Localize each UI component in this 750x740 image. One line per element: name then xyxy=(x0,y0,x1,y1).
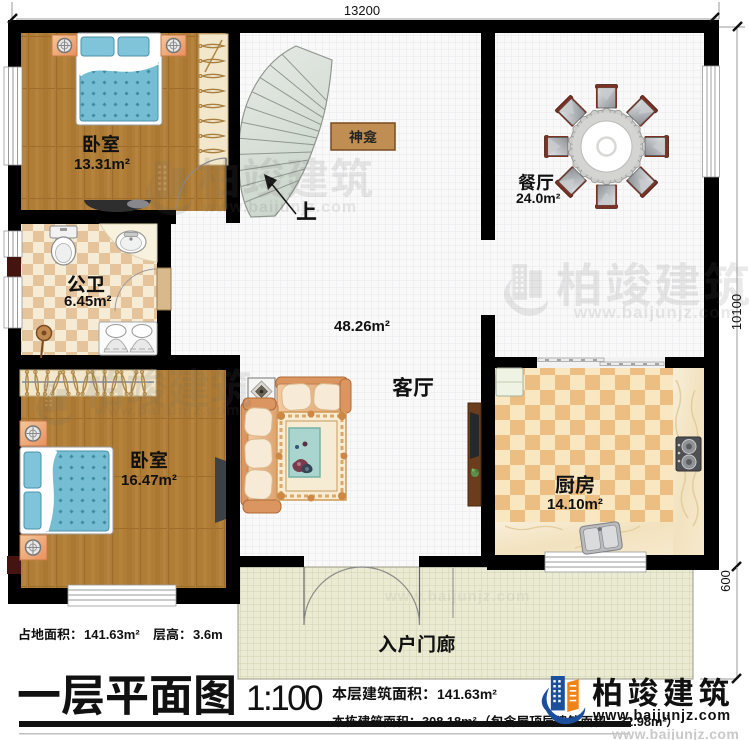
svg-text:www.baijunjz.com: www.baijunjz.com xyxy=(94,402,240,419)
svg-text:600: 600 xyxy=(718,570,733,592)
svg-text:www.baijunjz.com: www.baijunjz.com xyxy=(573,303,737,322)
svg-text:24.0m²: 24.0m² xyxy=(516,190,561,206)
svg-text:141.63m²: 141.63m² xyxy=(437,686,497,702)
svg-text:3.6m: 3.6m xyxy=(193,627,223,642)
svg-text:13.31m²: 13.31m² xyxy=(74,156,130,173)
svg-text:1:100: 1:100 xyxy=(246,679,323,718)
svg-text:48.26m²: 48.26m² xyxy=(334,318,390,335)
svg-text:141.63m²: 141.63m² xyxy=(84,627,140,642)
svg-text:www.baijunjz.com: www.baijunjz.com xyxy=(592,708,731,724)
svg-text:10100: 10100 xyxy=(729,294,744,330)
svg-text:16.47m²: 16.47m² xyxy=(121,472,177,489)
svg-text:14.10m²: 14.10m² xyxy=(547,496,603,513)
svg-text:13200: 13200 xyxy=(344,3,380,18)
svg-text:308.18m²: 308.18m² xyxy=(422,714,477,729)
svg-text:6.45m²: 6.45m² xyxy=(64,293,112,310)
svg-text:www.baijunjz.com: www.baijunjz.com xyxy=(611,726,739,740)
svg-text:www.baijunjz.com: www.baijunjz.com xyxy=(384,588,530,605)
svg-text:www.baijunjz.com: www.baijunjz.com xyxy=(202,199,357,216)
